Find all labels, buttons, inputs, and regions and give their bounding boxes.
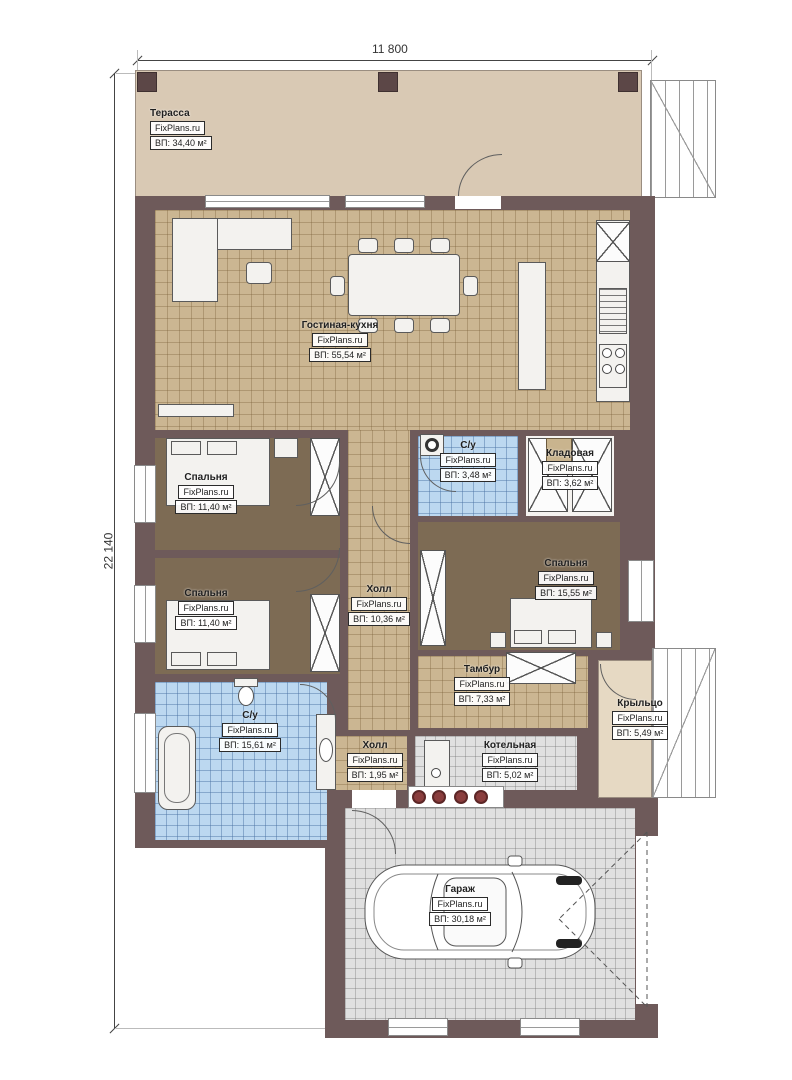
window: [520, 1018, 580, 1036]
pillow: [171, 441, 201, 455]
nightstand: [274, 438, 298, 458]
room-area: ВП: 5,49 м²: [612, 726, 669, 740]
extension-line: [116, 73, 136, 74]
brand-watermark: FixPlans.ru: [178, 601, 233, 615]
brand-watermark: FixPlans.ru: [178, 485, 233, 499]
boiler-unit: [424, 740, 450, 788]
terrace-post: [137, 72, 157, 92]
room-name: С/у: [460, 440, 476, 452]
room-name: Крыльцо: [617, 698, 663, 710]
room-area: ВП: 3,48 м²: [440, 468, 497, 482]
gas-meter: [432, 790, 446, 804]
coffee-table: [246, 262, 272, 284]
burner: [615, 348, 625, 358]
window: [134, 585, 156, 643]
pillow: [171, 652, 201, 666]
window: [134, 713, 156, 793]
room-name: Гостиная-кухня: [302, 320, 379, 332]
pillow: [514, 630, 542, 644]
room-area: ВП: 55,54 м²: [309, 348, 371, 362]
brand-watermark: FixPlans.ru: [542, 461, 597, 475]
room-name: Холл: [362, 740, 387, 752]
bathtub-basin: [164, 733, 190, 803]
window: [205, 195, 330, 208]
room-label-terrace: Терасса FixPlans.ru ВП: 34,40 м²: [150, 108, 246, 150]
dining-table: [348, 254, 460, 316]
window: [134, 465, 156, 523]
room-hall-floor: [348, 430, 410, 730]
room-name: Спальня: [184, 588, 227, 600]
extension-line: [137, 50, 138, 72]
room-area: ВП: 34,40 м²: [150, 136, 212, 150]
room-name: Кладовая: [546, 448, 594, 460]
room-area: ВП: 5,02 м²: [482, 768, 539, 782]
chair: [394, 318, 414, 333]
dimension-line-top: [137, 60, 652, 61]
brand-watermark: FixPlans.ru: [222, 723, 277, 737]
toilet: [238, 686, 254, 706]
brand-watermark: FixPlans.ru: [351, 597, 406, 611]
room-label-su-small: С/у FixPlans.ru ВП: 3,48 м²: [420, 440, 516, 482]
burner: [602, 364, 612, 374]
gas-meter: [454, 790, 468, 804]
room-area: ВП: 15,61 м²: [219, 738, 281, 752]
chair: [430, 238, 450, 253]
burner: [602, 348, 612, 358]
oven: [599, 288, 627, 334]
room-area: ВП: 11,40 м²: [175, 616, 236, 630]
nightstand: [596, 632, 612, 648]
extension-line: [116, 1028, 328, 1029]
chair: [330, 276, 345, 296]
room-area: ВП: 3,62 м²: [542, 476, 599, 490]
pillow: [207, 652, 237, 666]
room-name: Спальня: [544, 558, 587, 570]
room-area: ВП: 1,95 м²: [347, 768, 404, 782]
gas-meter: [474, 790, 488, 804]
pillow: [207, 441, 237, 455]
room-label-tambur: Тамбур FixPlans.ru ВП: 7,33 м²: [434, 664, 530, 706]
room-name: Спальня: [184, 472, 227, 484]
dimension-width: 11 800: [372, 42, 408, 56]
chair: [463, 276, 478, 296]
terrace-steps: [650, 80, 716, 198]
terrace-post: [378, 72, 398, 92]
chair: [358, 238, 378, 253]
entrance-opening: [455, 196, 501, 209]
chair: [394, 238, 414, 253]
boiler-dial: [431, 768, 441, 778]
chair: [430, 318, 450, 333]
room-label-garage: Гараж FixPlans.ru ВП: 30,18 м²: [412, 884, 508, 926]
window: [345, 195, 425, 208]
pillow: [548, 630, 576, 644]
room-name: Котельная: [484, 740, 536, 752]
room-label-su-big: С/у FixPlans.ru ВП: 15,61 м²: [202, 710, 298, 752]
floor-plan: 11 800 22 140: [0, 0, 792, 1080]
terrace-post: [618, 72, 638, 92]
room-label-bedroom1: Спальня FixPlans.ru ВП: 11,40 м²: [158, 472, 254, 514]
room-label-bedroom2: Спальня FixPlans.ru ВП: 11,40 м²: [158, 588, 254, 630]
garage-gate-swing: [555, 822, 650, 1017]
room-area: ВП: 30,18 м²: [429, 912, 491, 926]
room-label-porch: Крыльцо FixPlans.ru ВП: 5,49 м²: [592, 698, 688, 740]
room-label-living: Гостиная-кухня FixPlans.ru ВП: 55,54 м²: [292, 320, 388, 362]
brand-watermark: FixPlans.ru: [440, 453, 495, 467]
fridge: [596, 222, 630, 262]
brand-watermark: FixPlans.ru: [538, 571, 593, 585]
brand-watermark: FixPlans.ru: [482, 753, 537, 767]
room-name: Холл: [366, 584, 391, 596]
sofa-chaise: [172, 218, 218, 302]
tv-stand: [158, 404, 234, 417]
brand-watermark: FixPlans.ru: [454, 677, 509, 691]
room-label-boiler: Котельная FixPlans.ru ВП: 5,02 м²: [462, 740, 558, 782]
room-area: ВП: 10,36 м²: [348, 612, 410, 626]
brand-watermark: FixPlans.ru: [347, 753, 402, 767]
dimension-height: 22 140: [101, 533, 115, 570]
brand-watermark: FixPlans.ru: [150, 121, 205, 135]
room-name: Гараж: [445, 884, 475, 896]
window: [628, 560, 654, 622]
nightstand: [490, 632, 506, 648]
brand-watermark: FixPlans.ru: [432, 897, 487, 911]
room-label-hall-small: Холл FixPlans.ru ВП: 1,95 м²: [327, 740, 423, 782]
room-area: ВП: 11,40 м²: [175, 500, 236, 514]
gas-meter: [412, 790, 426, 804]
room-area: ВП: 15,55 м²: [535, 586, 597, 600]
room-name: Тамбур: [464, 664, 500, 676]
room-label-kladovaya: Кладовая FixPlans.ru ВП: 3,62 м²: [522, 448, 618, 490]
room-label-hall: Холл FixPlans.ru ВП: 10,36 м²: [331, 584, 427, 626]
window: [388, 1018, 448, 1036]
room-label-bedroom3: Спальня FixPlans.ru ВП: 15,55 м²: [518, 558, 614, 600]
brand-watermark: FixPlans.ru: [312, 333, 367, 347]
kitchen-island: [518, 262, 546, 390]
burner: [615, 364, 625, 374]
garage-door-opening: [352, 790, 396, 808]
brand-watermark: FixPlans.ru: [612, 711, 667, 725]
room-area: ВП: 7,33 м²: [454, 692, 511, 706]
room-name: Терасса: [150, 108, 190, 120]
room-name: С/у: [242, 710, 258, 722]
extension-line: [651, 50, 652, 80]
